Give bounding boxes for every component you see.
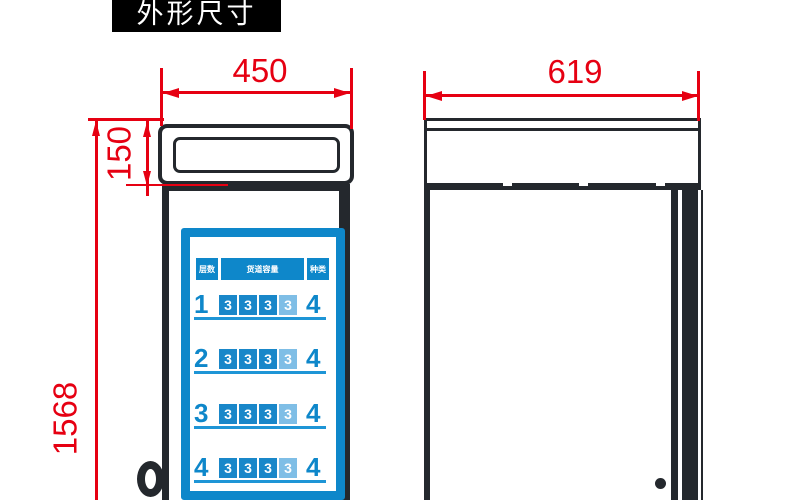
- arrowhead-up: [92, 121, 100, 136]
- vent-notch: [579, 183, 588, 186]
- table-row: 3 3 3 3 3 4: [190, 400, 330, 429]
- arrowhead-up: [143, 122, 151, 137]
- capacity-cell: 3: [239, 458, 257, 478]
- types-count: 4: [306, 454, 320, 480]
- arrowhead-left: [426, 91, 442, 101]
- capacity-cell: 3: [279, 295, 297, 315]
- capacity-cells: 3 3 3 3: [219, 458, 297, 478]
- dim-label-header-height: 150: [103, 120, 134, 188]
- row-underline: [194, 426, 326, 429]
- door-edge-bar: [671, 190, 678, 500]
- arrowhead-left: [163, 88, 179, 98]
- types-count: 4: [306, 291, 320, 317]
- layer-number: 3: [194, 400, 208, 426]
- row-underline: [194, 480, 326, 483]
- col-header-types: 种类: [307, 258, 329, 280]
- capacity-cells: 3 3 3 3: [219, 295, 297, 315]
- capacity-cell: 3: [239, 404, 257, 424]
- dim-label-front-width: 450: [200, 54, 320, 87]
- col-header-layers: 层数: [196, 258, 218, 280]
- vent-notch: [656, 183, 665, 186]
- row-underline: [194, 371, 326, 374]
- dimension-drawing: 外形尺寸 层数 货道容量 种类 1 3 3 3 3 4 2 3 3 3 3 4 …: [0, 0, 790, 500]
- layer-number: 1: [194, 291, 208, 317]
- page-title: 外形尺寸: [112, 0, 281, 32]
- capacity-cell: 3: [259, 295, 277, 315]
- capacity-cells: 3 3 3 3: [219, 349, 297, 369]
- dim-label-side-depth: 619: [515, 55, 635, 88]
- types-count: 4: [306, 345, 320, 371]
- capacity-cell: 3: [219, 458, 237, 478]
- vent-notch: [503, 183, 512, 186]
- arrowhead-right: [682, 91, 698, 101]
- extension-line-right: [350, 68, 353, 129]
- lock-ring: [137, 461, 164, 497]
- col-header-capacity: 货道容量: [221, 258, 304, 280]
- capacity-cell: 3: [239, 295, 257, 315]
- dim-line-overshoot: [146, 185, 149, 196]
- dim-line-front-width: [163, 91, 350, 94]
- capacity-cell: 3: [219, 404, 237, 424]
- table-row: 2 3 3 3 3 4: [190, 345, 330, 374]
- capacity-cell: 3: [259, 349, 277, 369]
- types-count: 4: [306, 400, 320, 426]
- side-view-left-edge: [424, 190, 430, 500]
- layer-number: 4: [194, 454, 208, 480]
- lock-dot: [655, 478, 666, 489]
- front-view-display-window: [173, 137, 340, 173]
- side-view-inner-line: [424, 128, 701, 131]
- capacity-cell: 3: [259, 458, 277, 478]
- capacity-cell: 3: [279, 458, 297, 478]
- door-outer-line: [701, 190, 703, 500]
- dim-label-total-height: 1568: [49, 374, 80, 464]
- capacity-cell: 3: [259, 404, 277, 424]
- dim-line-side-depth: [426, 94, 698, 97]
- arrowhead-right: [334, 88, 350, 98]
- capacity-cell: 3: [239, 349, 257, 369]
- door-panel-bar: [682, 190, 698, 500]
- capacity-cell: 3: [279, 349, 297, 369]
- capacity-cell: 3: [279, 404, 297, 424]
- table-row: 1 3 3 3 3 4: [190, 291, 330, 320]
- dim-line-total-height: [95, 121, 98, 500]
- layer-number: 2: [194, 345, 208, 371]
- capacity-cell: 3: [219, 295, 237, 315]
- capacity-cells: 3 3 3 3: [219, 404, 297, 424]
- table-row: 4 3 3 3 3 4: [190, 454, 330, 483]
- capacity-cell: 3: [219, 349, 237, 369]
- row-underline: [194, 317, 326, 320]
- extension-line-header-bottom: [126, 184, 228, 186]
